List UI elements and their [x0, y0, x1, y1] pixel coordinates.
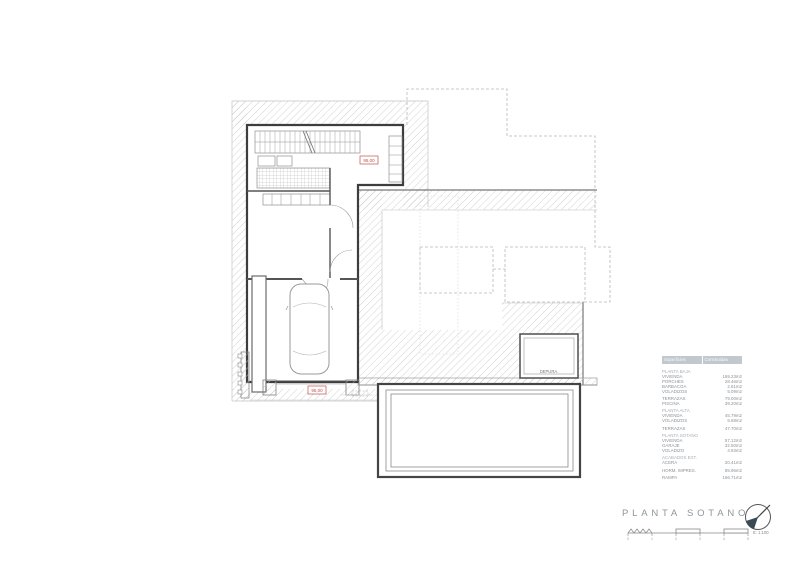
row-label: TERRAZAS — [662, 427, 685, 432]
row-label: VOLADIZO — [662, 449, 684, 454]
row-value: 85.96m2 — [725, 469, 742, 474]
areas-table-header: Superficies Construidas — [662, 356, 742, 364]
row-label: HORM. IMPRES. — [662, 469, 696, 474]
sheet-title: PLANTA SOTANO — [622, 508, 749, 519]
row-value: 47.70m2 — [725, 427, 742, 432]
elevation-lower-label: 95,00 — [311, 388, 323, 393]
depura-room: DEPURA. — [520, 334, 578, 378]
elevation-marker-upper: 95,00 — [360, 156, 378, 164]
scale-tick-0: 0 — [627, 537, 629, 541]
row-value: 39.20m2 — [725, 402, 742, 407]
drawing-sheet: DEPURA. 95,00 95,00 Superficies Construi… — [0, 0, 800, 565]
scale-tick-5: 5 — [747, 537, 749, 541]
depura-label: DEPURA. — [540, 369, 559, 374]
planter — [252, 276, 266, 392]
table-row: RAMPA166.71m2 — [662, 476, 742, 481]
row-label: PISCINA — [662, 402, 680, 407]
row-label: VOLADIZOS — [662, 390, 687, 395]
row-value: 5.09m2 — [727, 390, 742, 395]
row-value: 166.71m2 — [722, 476, 742, 481]
header-construidas: Construidas — [703, 356, 743, 364]
row-label: RAMPA — [662, 476, 677, 481]
row-label: ACERA — [662, 461, 677, 466]
scale-label: E: 1:100 — [753, 530, 769, 535]
scale-tick-4: 4 — [723, 537, 725, 541]
header-superficies: Superficies — [662, 356, 702, 364]
swimming-pool — [378, 384, 580, 477]
scale-tick-3: 3 — [699, 537, 701, 541]
elevation-marker-lower: 95,00 — [308, 386, 326, 394]
car-outline — [286, 284, 333, 374]
areas-table: Superficies Construidas PLANTA BAJAVIVIE… — [662, 356, 742, 481]
areas-table-rows: PLANTA BAJAVIVIENDA169.23m2PORCHES28.46m… — [662, 370, 742, 481]
scale-tick-2: 2 — [675, 537, 677, 541]
row-value: 4.93m2 — [727, 449, 742, 454]
row-value: 20.41m2 — [725, 461, 742, 466]
elevation-upper-label: 95,00 — [363, 158, 375, 163]
scale-bar: 0 1 2 3 4 5 E: 1:100 — [620, 524, 790, 544]
row-value: 5.68m2 — [727, 419, 742, 424]
row-label: VOLADIZOS — [662, 419, 687, 424]
scale-tick-1: 1 — [651, 537, 653, 541]
